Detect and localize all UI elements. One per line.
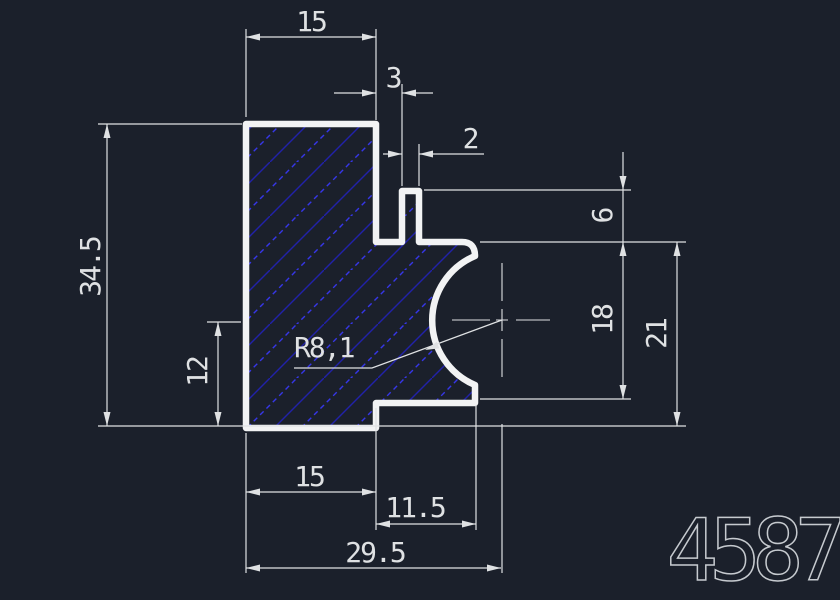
dim-text-tab-height: 6 xyxy=(586,207,619,223)
dim-text-top-width: 15 xyxy=(296,5,326,38)
dim-top-width: 15 xyxy=(246,5,376,41)
section-profile xyxy=(246,124,475,428)
dim-text-tab-width: 2 xyxy=(463,122,478,155)
dim-right-height: 21 xyxy=(640,242,681,426)
dim-notch-gap: 3 xyxy=(334,61,433,97)
dim-text-bottom-step-width: 11.5 xyxy=(385,491,445,524)
dim-text-notch-gap: 3 xyxy=(386,61,401,94)
dim-text-right-height: 21 xyxy=(640,319,673,349)
dim-text-radius: R8,1 xyxy=(294,331,354,364)
dim-lower-left-height: 12 xyxy=(181,322,222,426)
dim-bottom-width: 15 xyxy=(246,460,376,496)
dim-tab-height: 6 xyxy=(586,152,627,399)
dim-text-lower-left-height: 12 xyxy=(181,357,214,387)
dim-tab-width: 2 xyxy=(383,122,484,158)
dim-text-bottom-overall: 29.5 xyxy=(345,536,405,569)
cad-viewport[interactable]: 15 3 2 34.5 12 6 18 21 xyxy=(0,0,840,600)
dim-right-mid-height: 18 xyxy=(586,304,627,399)
dim-bottom-overall: 29.5 xyxy=(246,536,501,572)
drawing-canvas[interactable]: 15 3 2 34.5 12 6 18 21 xyxy=(0,0,840,600)
dim-total-height: 34.5 xyxy=(74,124,111,426)
part-number: 4587 xyxy=(666,501,840,600)
dim-text-total-height: 34.5 xyxy=(74,237,107,297)
dim-text-right-mid-height: 18 xyxy=(586,304,619,335)
profile-hatch-fill xyxy=(246,124,475,428)
dim-text-bottom-width: 15 xyxy=(294,460,324,493)
dim-bottom-step-width: 11.5 xyxy=(376,491,476,528)
